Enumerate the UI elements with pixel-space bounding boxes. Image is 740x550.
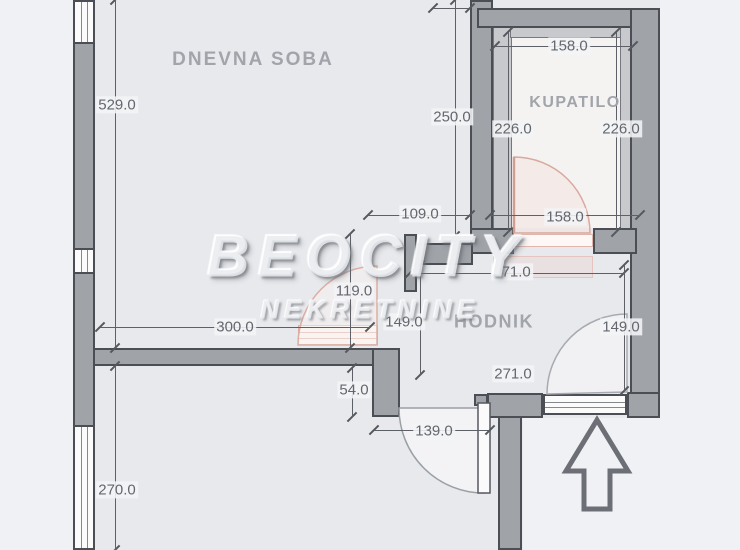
bathroom-door-threshold	[514, 234, 593, 247]
floor-plan: 529.0270.0250.0226.0226.0158.0158.0109.0…	[0, 0, 740, 550]
bottom-wall-right-block	[627, 392, 660, 418]
bathroom-bottom-wall-left	[470, 228, 514, 254]
center-vertical-wall	[470, 0, 493, 244]
bathroom-lining-left	[493, 26, 512, 238]
interior-bathroom	[512, 38, 620, 228]
left-wall-lower	[73, 272, 95, 427]
entry-door-hinge-block	[474, 394, 488, 406]
bottom-vertical-wall	[498, 416, 522, 550]
left-window-bottom	[73, 425, 95, 550]
hodnik-top-wall	[417, 243, 473, 265]
step-wall	[372, 348, 400, 417]
hodnik-left-wall	[404, 234, 417, 292]
living-door-pocket	[298, 325, 378, 345]
left-wall-upper	[73, 42, 95, 250]
entry-window	[543, 394, 627, 415]
renovation-pink-zone	[493, 256, 593, 278]
left-window-middle	[73, 248, 95, 274]
north-arrow	[566, 420, 628, 509]
bathroom-bottom-wall-right	[593, 228, 637, 254]
entry-wall-cap	[487, 393, 543, 418]
middle-horizontal-wall	[93, 348, 374, 366]
right-exterior-wall	[630, 8, 660, 418]
interior-bottom	[73, 348, 523, 550]
left-window-top	[73, 0, 95, 44]
